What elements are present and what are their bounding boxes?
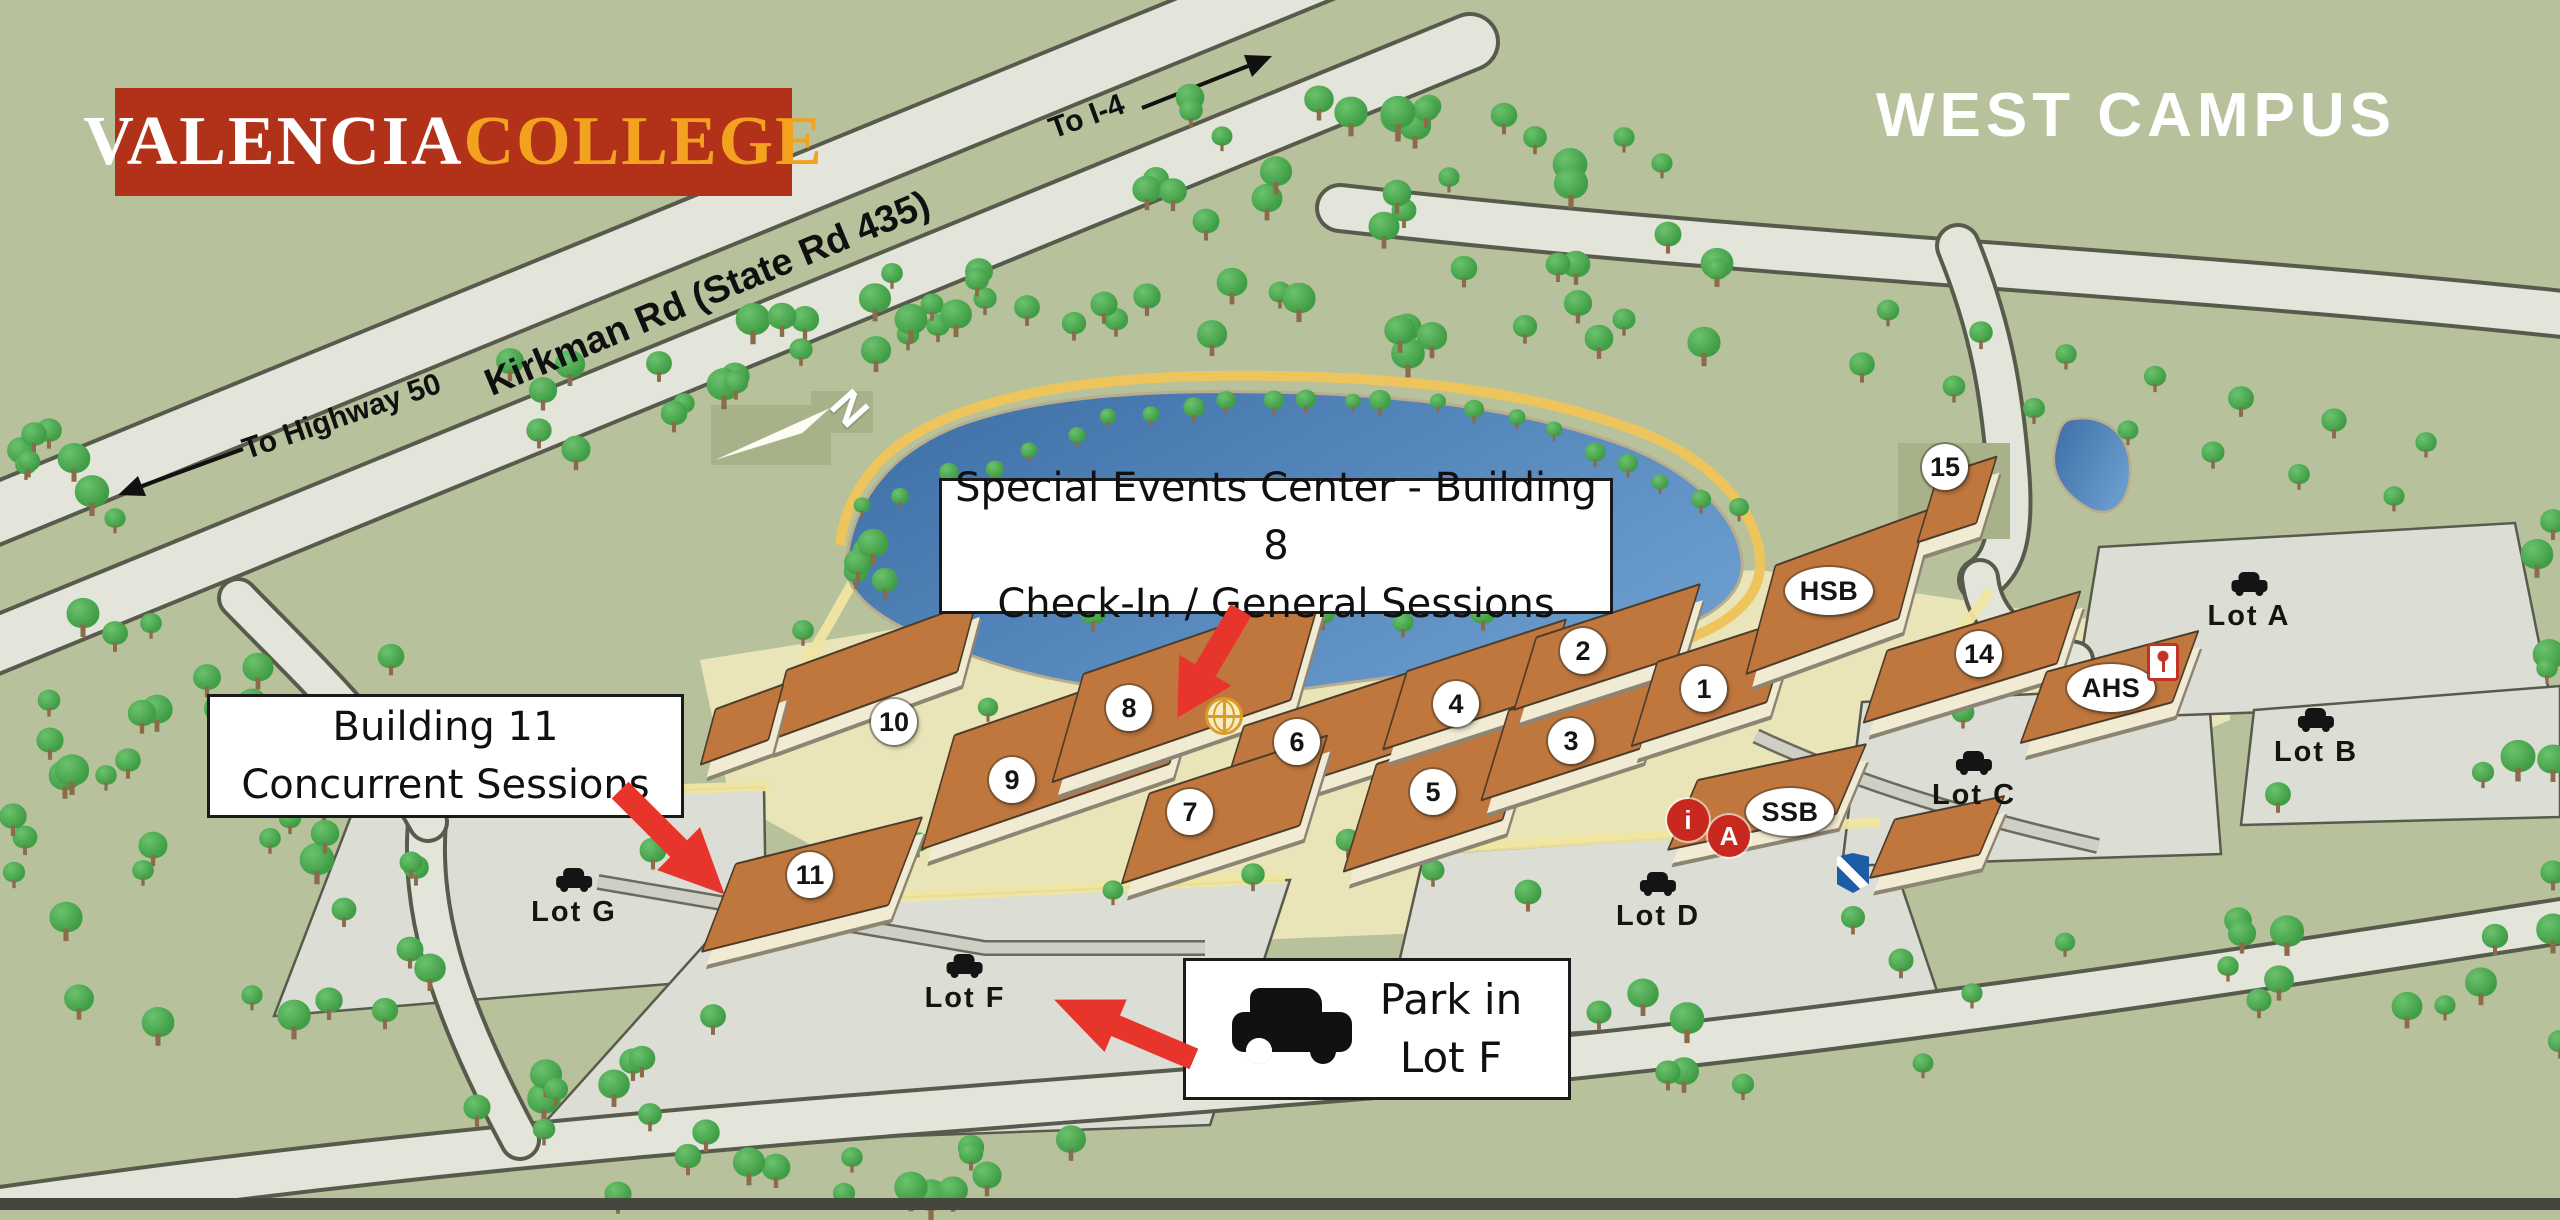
building-badge-9: 9 — [989, 757, 1035, 803]
tree-icon — [259, 828, 281, 848]
tree-icon — [562, 436, 591, 463]
tree-icon — [1132, 176, 1161, 203]
tree-icon — [1451, 256, 1478, 280]
lot-label-text: Lot B — [2274, 736, 2358, 768]
tree-icon — [2540, 860, 2560, 883]
tree-icon — [1546, 421, 1562, 436]
tree-icon — [1413, 97, 1439, 121]
tree-icon — [18, 451, 40, 472]
tree-icon — [1491, 103, 1518, 127]
tree-icon — [1384, 316, 1415, 345]
tree-icon — [1159, 178, 1187, 203]
tree-icon — [128, 700, 156, 726]
tree-icon — [1381, 96, 1416, 128]
building-badge-8: 8 — [1106, 685, 1152, 731]
tree-icon — [1260, 156, 1292, 186]
tree-icon — [277, 1000, 310, 1031]
callout-park-text: Park in Lot F — [1380, 971, 1522, 1087]
building-badge-15: 15 — [1922, 444, 1968, 490]
tree-icon — [75, 475, 109, 507]
tree-icon — [2501, 740, 2536, 772]
tree-icon — [1523, 126, 1547, 148]
tree-icon — [1369, 212, 1400, 241]
tree-icon — [1056, 1125, 1086, 1153]
lot-label-d: Lot D — [1616, 880, 1700, 933]
tree-icon — [1732, 1074, 1754, 1094]
tree-icon — [2265, 782, 2291, 806]
tree-icon — [1217, 268, 1248, 296]
tree-icon — [1706, 258, 1729, 279]
logo-valencia: VALENCIA — [83, 102, 463, 182]
tree-icon — [2118, 420, 2139, 439]
tree-icon — [2202, 441, 2225, 462]
tree-icon — [675, 1144, 701, 1168]
tree-icon — [49, 902, 82, 932]
tree-icon — [142, 1007, 175, 1037]
tree-icon — [132, 860, 154, 880]
valencia-college-logo: VALENCIACOLLEGE — [115, 88, 792, 196]
tree-icon — [1849, 352, 1874, 376]
tree-icon — [372, 998, 398, 1022]
tree-icon — [1193, 209, 1220, 234]
tree-icon — [2228, 386, 2254, 410]
building-badge-14: 14 — [1956, 631, 2002, 677]
tree-icon — [21, 422, 46, 446]
tree-icon — [629, 1046, 656, 1070]
tree-icon — [2264, 965, 2294, 992]
car-icon — [947, 962, 983, 974]
lot-label-text: Lot D — [1616, 900, 1700, 932]
tree-icon — [2537, 744, 2560, 773]
tree-icon — [1021, 442, 1038, 457]
tree-icon — [881, 263, 903, 283]
tree-icon — [2465, 967, 2497, 996]
tree-icon — [1687, 327, 1720, 357]
tree-icon — [733, 1147, 765, 1177]
tree-icon — [646, 351, 672, 375]
page-title: WEST CAMPUS — [1876, 80, 2396, 151]
tree-icon — [859, 283, 891, 313]
callout-building-11-line2: Concurrent Sessions — [241, 756, 649, 814]
tree-icon — [1729, 498, 1749, 516]
tree-icon — [1877, 300, 1899, 321]
tree-icon — [139, 832, 168, 859]
tree-icon — [67, 598, 100, 628]
tree-icon — [1369, 390, 1391, 410]
tree-icon — [1655, 1060, 1680, 1083]
tree-icon — [2536, 658, 2557, 678]
lot-label-a: Lot A — [2207, 580, 2290, 633]
tree-icon — [2228, 920, 2256, 946]
tree-icon — [1179, 99, 1202, 121]
callout-park-lot-f: Park in Lot F — [1183, 958, 1571, 1100]
tree-icon — [1691, 490, 1711, 508]
lot-label-b: Lot B — [2274, 716, 2358, 769]
tree-icon — [638, 1103, 662, 1125]
tree-icon — [841, 1147, 862, 1167]
tree-icon — [1014, 295, 1040, 319]
callout-building-11-line1: Building 11 — [333, 698, 559, 756]
callout-special-events-line1: Special Events Center - Building 8 — [942, 459, 1610, 575]
tree-icon — [241, 985, 262, 1004]
tree-icon — [1627, 978, 1658, 1007]
tree-icon — [1383, 180, 1412, 206]
tree-icon — [1062, 312, 1086, 334]
tree-icon — [1564, 290, 1592, 316]
tree-icon — [661, 401, 688, 425]
tree-icon — [1651, 153, 1672, 172]
car-icon — [556, 876, 592, 888]
tree-icon — [1464, 400, 1484, 418]
lot-label-text: Lot C — [1932, 779, 2016, 811]
logo-college: COLLEGE — [464, 102, 824, 182]
callout-special-events-line2: Check-In / General Sessions — [997, 575, 1554, 633]
lot-label-text: Lot A — [2207, 600, 2290, 632]
tree-icon — [891, 488, 909, 504]
tree-icon — [1264, 391, 1284, 410]
tree-icon — [959, 1142, 983, 1164]
tree-icon — [1943, 376, 1966, 397]
tree-icon — [64, 984, 94, 1011]
tree-icon — [36, 728, 63, 753]
tree-icon — [526, 418, 551, 441]
tree-icon — [1546, 253, 1571, 276]
tree-icon — [2434, 995, 2455, 1014]
tree-icon — [55, 754, 89, 785]
tree-icon — [895, 304, 928, 334]
building-badge-11: 11 — [787, 852, 833, 898]
tree-icon — [311, 820, 339, 846]
lot-label-c: Lot C — [1932, 759, 2016, 812]
tree-icon — [598, 1069, 629, 1098]
tree-icon — [854, 497, 871, 512]
tree-icon — [2270, 915, 2304, 946]
tree-icon — [2055, 344, 2076, 364]
lot-label-g: Lot G — [531, 876, 617, 929]
tree-icon — [1655, 222, 1682, 247]
tree-icon — [2540, 509, 2560, 533]
tree-icon — [978, 698, 998, 717]
tree-icon — [1068, 427, 1085, 443]
tree-icon — [692, 1119, 719, 1144]
callout-park-line2: Lot F — [1380, 1029, 1522, 1087]
tree-icon — [463, 1095, 490, 1120]
tree-icon — [2144, 366, 2166, 386]
tree-icon — [972, 1162, 1001, 1189]
callout-park-line1: Park in — [1380, 971, 1522, 1029]
building-badge-1: 1 — [1681, 666, 1727, 712]
tree-icon — [2472, 762, 2494, 782]
tree-icon — [2536, 914, 2560, 945]
tree-icon — [38, 690, 61, 711]
car-icon — [1640, 880, 1676, 892]
tree-icon — [2482, 924, 2508, 948]
tree-icon — [965, 268, 989, 290]
tree-icon — [378, 644, 405, 668]
tree-icon — [1841, 906, 1865, 928]
car-icon — [1956, 759, 1992, 771]
tree-icon — [1618, 454, 1638, 472]
tree-icon — [1515, 880, 1542, 905]
tree-icon — [724, 371, 748, 393]
tree-icon — [1430, 394, 1446, 409]
tree-icon — [332, 898, 357, 921]
car-icon — [2298, 716, 2334, 728]
car-icon — [2231, 580, 2267, 592]
tree-icon — [1509, 409, 1526, 425]
tree-icon — [2023, 398, 2045, 418]
tree-icon — [1952, 702, 1975, 723]
tree-icon — [789, 338, 812, 359]
tree-icon — [1613, 127, 1634, 147]
tree-icon — [2288, 464, 2310, 484]
tree-icon — [315, 987, 342, 1012]
tree-icon — [736, 303, 771, 335]
building-badge-2: 2 — [1560, 628, 1606, 674]
tree-icon — [102, 621, 128, 645]
building-badge-3: 3 — [1548, 718, 1594, 764]
tree-icon — [58, 443, 91, 473]
tree-icon — [1241, 863, 1264, 885]
car-icon — [1232, 1012, 1352, 1052]
tree-icon — [1304, 85, 1333, 112]
tree-icon — [3, 862, 25, 882]
building-badge-ahs: AHS — [2067, 664, 2155, 712]
lot-label-text: Lot G — [531, 896, 617, 928]
tree-icon — [872, 568, 898, 592]
tree-icon — [1345, 394, 1361, 408]
tree-icon — [1212, 126, 1233, 145]
tree-icon — [762, 1154, 791, 1180]
tree-icon — [2383, 486, 2404, 505]
tree-icon — [861, 336, 891, 364]
tree-icon — [193, 664, 221, 690]
tree-icon — [95, 765, 116, 785]
lot-label-text: Lot F — [925, 982, 1006, 1014]
tree-icon — [1438, 167, 1459, 186]
tree-icon — [2415, 432, 2436, 452]
tree-icon — [400, 851, 423, 872]
tree-icon — [940, 299, 972, 328]
tree-icon — [13, 826, 38, 849]
tree-icon — [1197, 320, 1227, 348]
tree-icon — [544, 1078, 568, 1100]
tree-icon — [1961, 983, 1982, 1002]
tree-icon — [1513, 315, 1537, 337]
tree-icon — [1889, 948, 1914, 971]
campus-map: N VALENCIACOLLEGE WEST CAMPUS Kirkman Rd… — [0, 0, 2560, 1210]
tree-icon — [1554, 167, 1588, 198]
tree-icon — [1090, 292, 1117, 317]
tree-icon — [858, 529, 889, 557]
building-badge-10: 10 — [871, 699, 917, 745]
tree-icon — [1334, 97, 1367, 128]
tree-icon — [414, 953, 445, 982]
tree-icon — [2247, 988, 2272, 1011]
building-badge-5: 5 — [1410, 769, 1456, 815]
tree-icon — [243, 653, 274, 682]
tree-icon — [792, 620, 814, 640]
tree-icon — [0, 803, 27, 828]
tree-icon — [2217, 956, 2238, 976]
accessibility-icon: A — [1708, 815, 1750, 857]
tree-icon — [768, 303, 797, 329]
tree-icon — [1282, 283, 1315, 313]
building-badge-hsb: HSB — [1785, 567, 1873, 615]
tree-icon — [2321, 408, 2346, 431]
callout-special-events: Special Events Center - Building 8 Check… — [939, 478, 1613, 614]
bottom-border — [0, 1198, 2560, 1210]
tree-icon — [533, 1119, 555, 1140]
tree-icon — [1613, 308, 1636, 329]
tree-icon — [1422, 859, 1445, 880]
wellness-icon — [2147, 643, 2179, 681]
tree-icon — [1216, 391, 1235, 409]
tree-icon — [300, 843, 335, 875]
building-badge-7: 7 — [1167, 789, 1213, 835]
building-badge-ssb: SSB — [1746, 788, 1834, 836]
tree-icon — [104, 508, 125, 527]
tree-icon — [1143, 406, 1160, 422]
tree-icon — [700, 1004, 726, 1028]
callout-building-11: Building 11 Concurrent Sessions — [207, 694, 684, 818]
tree-icon — [1585, 325, 1614, 351]
tree-icon — [1969, 321, 1992, 343]
tree-icon — [2055, 933, 2075, 952]
tree-icon — [115, 748, 140, 772]
tree-icon — [1133, 283, 1160, 308]
building-badge-6: 6 — [1274, 719, 1320, 765]
tree-icon — [2521, 539, 2554, 569]
tree-icon — [1100, 408, 1116, 423]
globe-icon — [1205, 697, 1243, 735]
building-badge-4: 4 — [1433, 681, 1479, 727]
tree-icon — [1913, 1053, 1934, 1072]
tree-icon — [1183, 397, 1204, 417]
info-icon: i — [1667, 799, 1709, 841]
tree-icon — [140, 613, 162, 633]
lot-label-f: Lot F — [925, 962, 1006, 1015]
tree-icon — [1670, 1002, 1704, 1034]
tree-icon — [2392, 992, 2423, 1020]
tree-icon — [1652, 474, 1669, 489]
tree-icon — [1587, 1000, 1612, 1023]
tree-icon — [1296, 390, 1316, 409]
